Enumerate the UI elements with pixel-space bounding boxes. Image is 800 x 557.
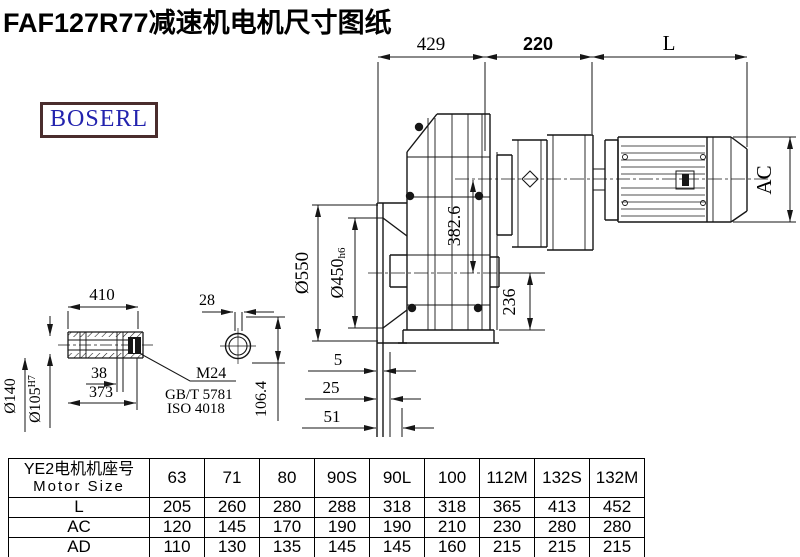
dimension-value-cell: 215 — [590, 538, 645, 557]
frame-size-column-header: 112M — [480, 459, 535, 498]
dimension-value-cell: 318 — [370, 498, 425, 518]
dim-dia550-label: Ø550 — [292, 252, 313, 294]
dim-38-label: 38 — [91, 365, 107, 382]
thread-callout-label: M24 — [196, 365, 226, 382]
dimension-value-cell: 215 — [535, 538, 590, 557]
dimension-value-cell: 452 — [590, 498, 645, 518]
dimension-value-cell: 210 — [425, 518, 480, 538]
dimension-value-cell: 190 — [370, 518, 425, 538]
dimension-value-cell: 280 — [590, 518, 645, 538]
dimension-value-cell: 230 — [480, 518, 535, 538]
dimension-value-cell: 190 — [315, 518, 370, 538]
frame-size-column-header: 132M — [590, 459, 645, 498]
dim-373-label: 373 — [89, 384, 113, 401]
standard-iso-label: ISO 4018 — [167, 401, 225, 417]
dim-25-label: 25 — [323, 378, 340, 397]
top-dimension-chain — [378, 57, 747, 202]
terminal-block-icon — [682, 174, 689, 186]
dim-dia140-label: Ø140 — [2, 378, 19, 414]
dim-236-label: 236 — [499, 289, 519, 316]
frame-size-column-header: 80 — [260, 459, 315, 498]
dimension-value-cell: 413 — [535, 498, 590, 518]
drawing-page: FAF127R77减速机电机尺寸图纸 BOSERL 429 220 L — [0, 0, 800, 557]
dim-429-label: 429 — [417, 34, 446, 55]
row-label: AC — [9, 518, 150, 538]
adapter-housing — [497, 135, 605, 250]
frame-size-column-header: 100 — [425, 459, 480, 498]
frame-size-column-header: 90L — [370, 459, 425, 498]
frame-size-column-header: 63 — [150, 459, 205, 498]
row-label: AD — [9, 538, 150, 557]
dimension-value-cell: 145 — [205, 518, 260, 538]
dim-220-label: 220 — [523, 34, 553, 54]
dimension-value-cell: 145 — [315, 538, 370, 557]
motor-size-header-cell: YE2电机机座号Motor Size — [9, 459, 150, 498]
dimension-value-cell: 318 — [425, 498, 480, 518]
dim-382-label: 382.6 — [444, 206, 464, 247]
dimension-value-cell: 280 — [260, 498, 315, 518]
dimension-value-cell: 110 — [150, 538, 205, 557]
dimension-value-cell: 205 — [150, 498, 205, 518]
dim-51-label: 51 — [324, 407, 341, 426]
dimension-value-cell: 145 — [370, 538, 425, 557]
dim-dia450-label: Ø450h6 — [327, 247, 348, 299]
frame-size-column-header: 90S — [315, 459, 370, 498]
motor — [455, 137, 770, 222]
motor-size-header-cn: YE2电机机座号 — [9, 461, 149, 479]
output-flange — [377, 203, 407, 437]
table-header-row: YE2电机机座号Motor Size63718090S90L100112M132… — [9, 459, 645, 498]
table-row: AD110130135145145160215215215 — [9, 538, 645, 557]
dim-410-label: 410 — [89, 285, 115, 304]
motor-size-header-en: Motor Size — [9, 479, 149, 496]
dim-28-label: 28 — [199, 292, 215, 309]
dimension-value-cell: 260 — [205, 498, 260, 518]
dimension-value-cell: 365 — [480, 498, 535, 518]
dim-5-label: 5 — [334, 350, 343, 369]
table-row: L205260280288318318365413452 — [9, 498, 645, 518]
dimension-value-cell: 215 — [480, 538, 535, 557]
dimension-value-cell: 120 — [150, 518, 205, 538]
main-view-dimensions — [312, 137, 796, 341]
dimension-value-cell: 288 — [315, 498, 370, 518]
row-label: L — [9, 498, 150, 518]
frame-size-column-header: 132S — [535, 459, 590, 498]
dimension-value-cell: 135 — [260, 538, 315, 557]
dim-dia105-label: Ø105H7 — [27, 375, 44, 423]
dimension-value-cell: 280 — [535, 518, 590, 538]
dim-L-label: L — [663, 31, 676, 55]
table-row: AC120145170190190210230280280 — [9, 518, 645, 538]
cooling-fins — [621, 146, 705, 216]
motor-size-table: YE2电机机座号Motor Size63718090S90L100112M132… — [8, 458, 645, 557]
dim-AC-label: AC — [752, 165, 776, 194]
dimension-value-cell: 160 — [425, 538, 480, 557]
dim-1064-label: 106.4 — [253, 381, 270, 417]
dimension-value-cell: 130 — [205, 538, 260, 557]
frame-size-column-header: 71 — [205, 459, 260, 498]
dimension-value-cell: 170 — [260, 518, 315, 538]
